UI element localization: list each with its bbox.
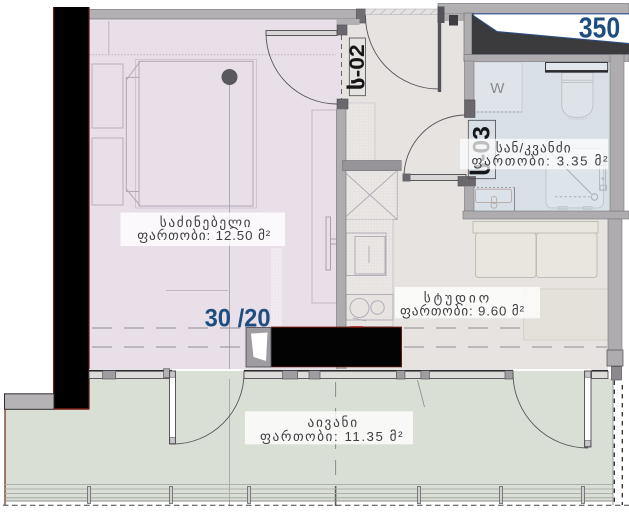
svg-text:ფართობი: 12.50 მ²: ფართობი: 12.50 მ² bbox=[137, 228, 271, 243]
svg-text:350: 350 bbox=[579, 13, 621, 45]
svg-text:30 /20: 30 /20 bbox=[205, 305, 271, 333]
svg-text:W: W bbox=[490, 80, 505, 97]
svg-text:ს-02: ს-02 bbox=[346, 44, 369, 90]
svg-text:ფართობი: 9.60 მ²: ფართობი: 9.60 მ² bbox=[400, 304, 525, 319]
svg-text:ფართობი: 11.35 მ²: ფართობი: 11.35 მ² bbox=[260, 429, 403, 444]
